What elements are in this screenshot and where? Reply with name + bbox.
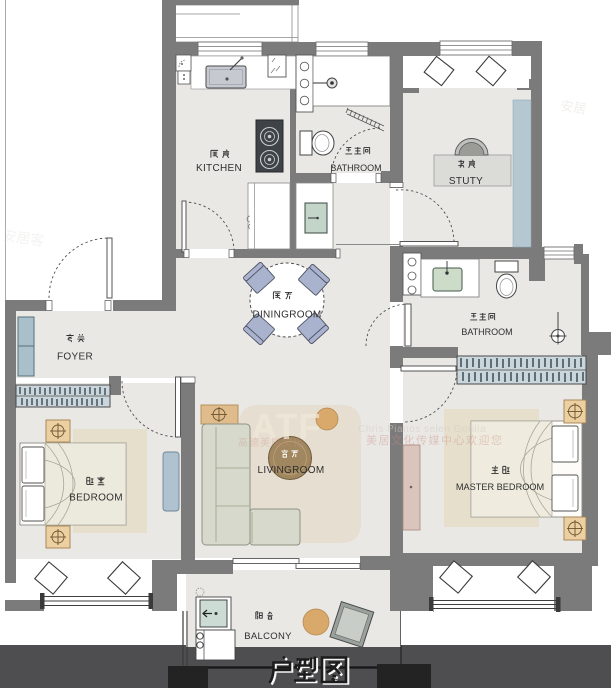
svg-text:MASTER BEDROOM: MASTER BEDROOM: [456, 482, 544, 492]
svg-text:BATHROOM: BATHROOM: [330, 163, 381, 173]
svg-text:BEDROOM: BEDROOM: [69, 493, 123, 504]
svg-text:美居文化传媒中心欢迎您: 美居文化传媒中心欢迎您: [366, 433, 504, 447]
svg-text:FOYER: FOYER: [57, 352, 93, 363]
svg-text:Chris Pianos selen Gorilla: Chris Pianos selen Gorilla: [358, 424, 486, 435]
svg-text:KITCHEN: KITCHEN: [196, 163, 242, 174]
svg-text:BALCONY: BALCONY: [244, 631, 292, 642]
svg-text:STUTY: STUTY: [449, 176, 483, 187]
svg-text:LIVINGROOM: LIVINGROOM: [258, 465, 325, 476]
svg-text:DININGROOM: DININGROOM: [252, 310, 321, 321]
svg-text:高德美居文化: 高德美居文化: [238, 436, 304, 449]
svg-text:BATHROOM: BATHROOM: [461, 327, 512, 337]
